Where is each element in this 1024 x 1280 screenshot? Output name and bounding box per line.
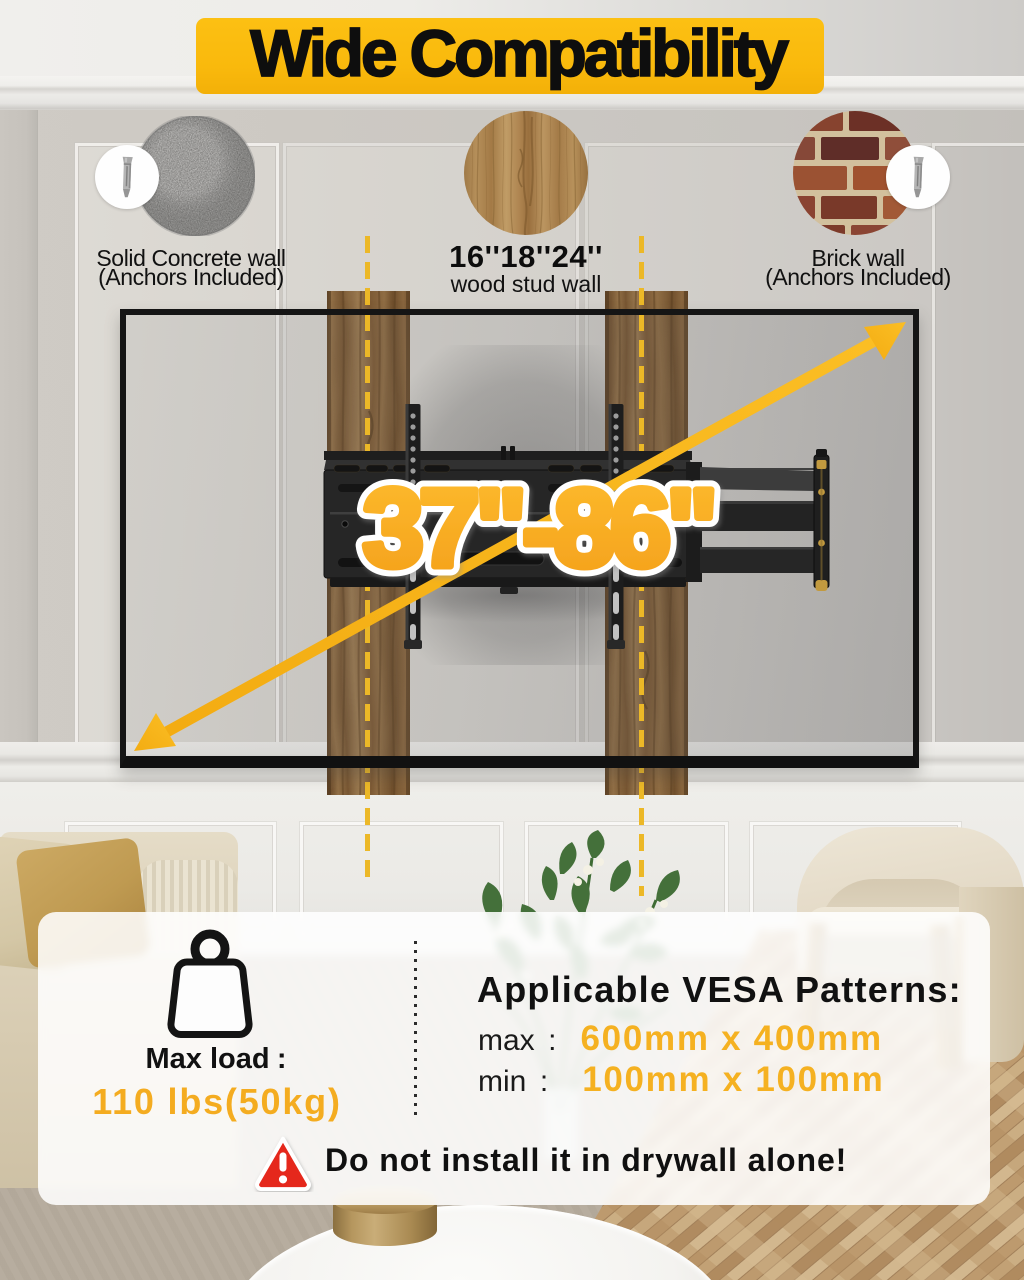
svg-text:37"-86": 37"-86" <box>363 467 714 590</box>
